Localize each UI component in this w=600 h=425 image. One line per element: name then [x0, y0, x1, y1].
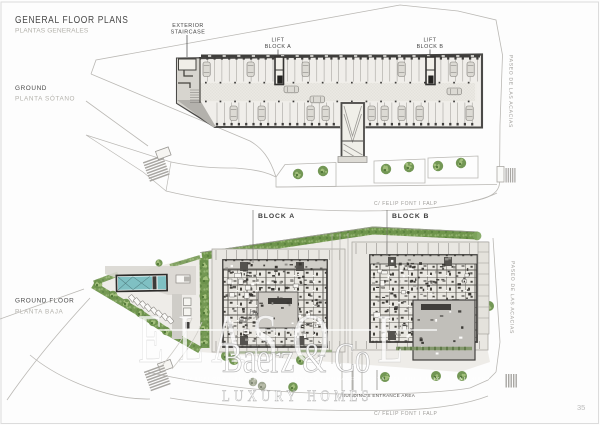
svg-text:PLANTA SÓTANO: PLANTA SÓTANO — [15, 94, 75, 103]
svg-text:STAIRCASE: STAIRCASE — [171, 30, 206, 36]
svg-text:GROUND: GROUND — [15, 85, 47, 92]
svg-text:L: L — [377, 299, 404, 377]
svg-text:PASEO DE LAS ACACIAS: PASEO DE LAS ACACIAS — [508, 261, 515, 334]
svg-text:EXTERIOR: EXTERIOR — [172, 23, 204, 29]
svg-text:LIFT: LIFT — [271, 38, 284, 44]
svg-text:BLOCK B: BLOCK B — [417, 44, 444, 50]
svg-text:PASEO DE LAS ACACIAS: PASEO DE LAS ACACIAS — [507, 55, 513, 128]
svg-text:E: E — [138, 301, 164, 377]
svg-text:LUXURY HOMES: LUXURY HOMES — [222, 388, 373, 406]
svg-text:LIFT: LIFT — [423, 38, 436, 44]
svg-text:by: by — [249, 308, 259, 319]
svg-text:BLOCK B: BLOCK B — [392, 213, 429, 220]
svg-text:C/ FELIP FONT I FALP: C/ FELIP FONT I FALP — [374, 201, 438, 207]
svg-text:PLANTA BAJA: PLANTA BAJA — [15, 309, 64, 316]
svg-text:BARCELONA | AMSTERDAM | ANTWER: BARCELONA | AMSTERDAM | ANTWERP | MONACO… — [185, 376, 491, 381]
svg-text:BLOCK A: BLOCK A — [265, 44, 292, 50]
svg-text:35: 35 — [577, 403, 585, 412]
svg-text:BLOCK A: BLOCK A — [258, 213, 295, 220]
svg-text:PLANTAS GENERALES: PLANTAS GENERALES — [15, 28, 89, 35]
svg-text:GENERAL FLOOR PLANS: GENERAL FLOOR PLANS — [15, 14, 129, 25]
svg-text:C/ FELIP FONT I FALP: C/ FELIP FONT I FALP — [374, 411, 438, 417]
svg-text:Baerz & Co: Baerz & Co — [222, 334, 370, 381]
svg-text:L: L — [178, 299, 205, 377]
